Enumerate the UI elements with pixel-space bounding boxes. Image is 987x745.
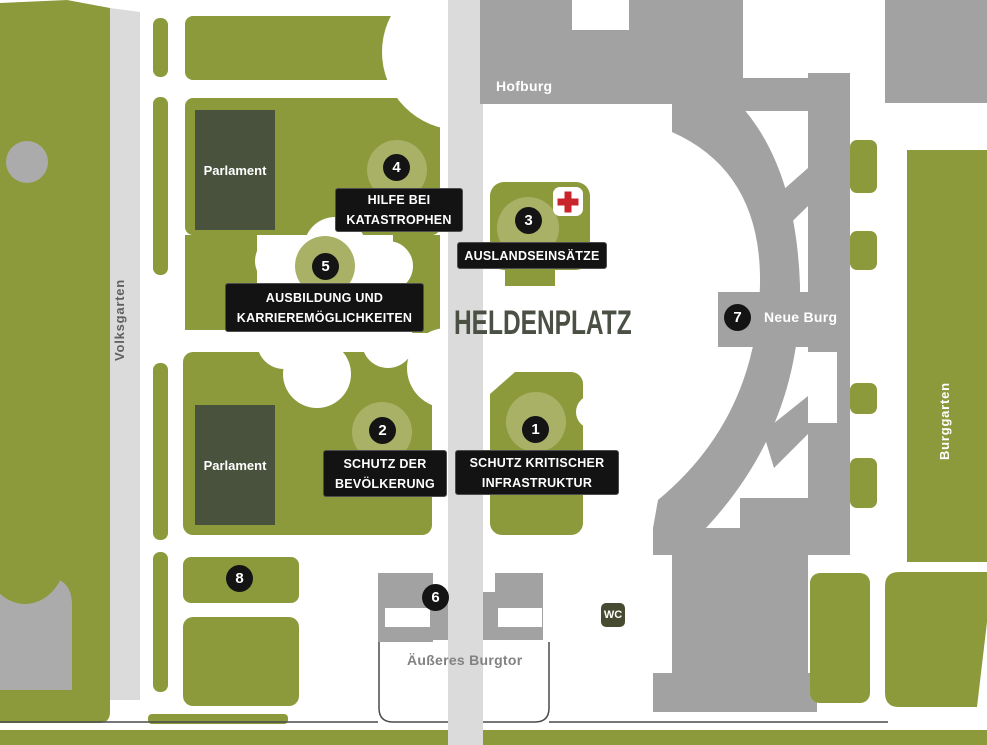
station-label-2[interactable]: SCHUTZ DER BEVÖLKERUNG xyxy=(323,450,447,497)
station-lawn-1-notch xyxy=(576,395,610,429)
station-marker-5[interactable]: 5 xyxy=(312,253,339,280)
hedge-strip-4 xyxy=(153,552,168,692)
first-aid-icon xyxy=(553,187,583,216)
burgtor-arch-right xyxy=(498,608,542,627)
burgtor-arch-left xyxy=(385,608,430,627)
station-marker-8[interactable]: 8 xyxy=(226,565,253,592)
burgtor-tower-right xyxy=(495,573,543,593)
burggarten-lawn-2 xyxy=(885,572,987,707)
hofburg-label: Hofburg xyxy=(496,78,552,94)
neue-burg-base xyxy=(740,498,850,530)
label-line: HILFE BEI xyxy=(368,190,431,210)
station-marker-1[interactable]: 1 xyxy=(522,416,549,443)
flower-cutout-6 xyxy=(283,340,351,408)
label-line: KATASTROPHEN xyxy=(346,210,451,230)
station-label-5[interactable]: AUSBILDUNG UND KARRIEREMÖGLICHKEITEN xyxy=(225,283,424,332)
label-line: SCHUTZ DER xyxy=(343,454,426,474)
heldenplatz-title: HELDENPLATZ xyxy=(454,304,632,343)
label-line: BEVÖLKERUNG xyxy=(335,474,435,494)
heldenplatz-map: HELDENPLATZ Hofburg Neue Burg Äußeres Bu… xyxy=(0,0,987,745)
wc-badge: WC xyxy=(601,603,625,627)
parlament-label-north: Parlament xyxy=(204,163,267,178)
station-label-1[interactable]: SCHUTZ KRITISCHER INFRASTRUKTUR xyxy=(455,450,619,495)
red-cross-icon xyxy=(553,187,583,216)
hofburg-notch xyxy=(572,0,629,30)
label-line: KARRIEREMÖGLICHKEITEN xyxy=(237,308,412,328)
parlament-building-south: Parlament xyxy=(195,405,275,525)
map-canvas xyxy=(0,0,987,745)
burggarten-pill-1 xyxy=(850,140,877,193)
hedge-strip-1 xyxy=(153,18,168,77)
volksgarten-label: Volksgarten xyxy=(112,283,127,361)
station-marker-2[interactable]: 2 xyxy=(369,417,396,444)
building-northeast xyxy=(885,0,987,103)
neue-burg-top-bar xyxy=(743,78,850,111)
label-line: AUSLANDSEINSÄTZE xyxy=(464,246,599,266)
park-plaza-circle xyxy=(6,141,48,183)
parlament-label-south: Parlament xyxy=(204,458,267,473)
heldenplatz-road xyxy=(448,0,483,745)
burggarten-pill-2 xyxy=(850,231,877,270)
burggarten-label: Burggarten xyxy=(937,350,952,460)
neue-burg-label: Neue Burg xyxy=(764,309,837,325)
station-label-3[interactable]: AUSLANDSEINSÄTZE xyxy=(457,242,607,269)
parlament-building-north: Parlament xyxy=(195,110,275,230)
station-marker-4[interactable]: 4 xyxy=(383,154,410,181)
station-marker-6[interactable]: 6 xyxy=(422,584,449,611)
station-marker-3[interactable]: 3 xyxy=(515,207,542,234)
label-line: SCHUTZ KRITISCHER xyxy=(470,453,605,473)
hedge-strip-3 xyxy=(153,363,168,540)
neue-burg-slot xyxy=(808,352,837,423)
station-lawn-3-tab xyxy=(505,268,555,286)
label-line: AUSBILDUNG UND xyxy=(266,288,383,308)
aeusseres-burgtor-label: Äußeres Burgtor xyxy=(407,652,522,668)
burggarten-pill-4 xyxy=(850,458,877,508)
label-line: INFRASTRUKTUR xyxy=(482,473,592,493)
lawn-block-sw xyxy=(183,617,299,706)
station-marker-7[interactable]: 7 xyxy=(724,304,751,331)
hedge-strip-2 xyxy=(153,97,168,275)
burggarten-pill-3 xyxy=(850,383,877,414)
station-label-4[interactable]: HILFE BEI KATASTROPHEN xyxy=(335,188,463,232)
burggarten-lawn-1 xyxy=(810,573,870,703)
ring-green-band xyxy=(0,730,987,745)
